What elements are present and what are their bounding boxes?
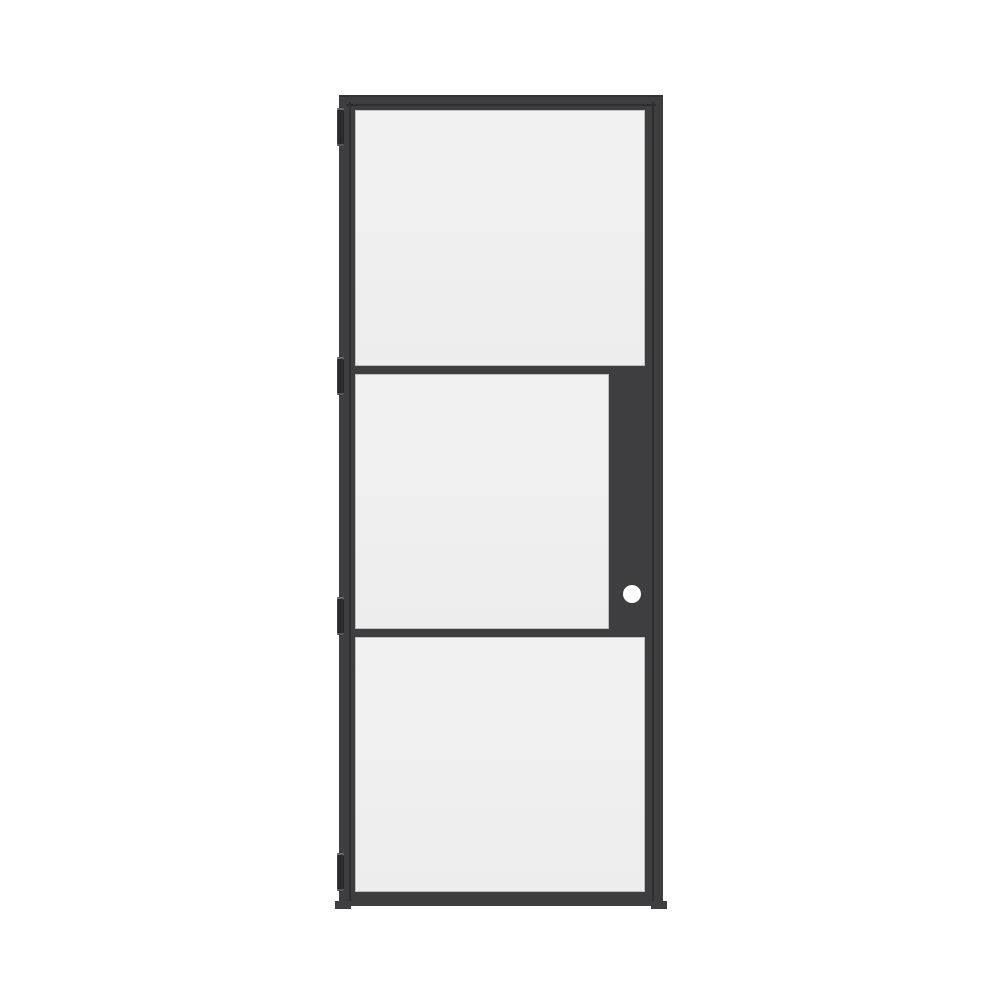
glass-panel-bottom [355, 637, 645, 892]
steel-glass-door [339, 95, 663, 906]
door-hinge-lower-middle [337, 597, 344, 635]
frame-head-edge [339, 95, 663, 97]
product-image-canvas [0, 0, 1000, 1000]
jamb-foot-left [335, 901, 351, 909]
door-knob-hole [623, 585, 641, 603]
door-hinge-upper-middle [337, 357, 344, 395]
frame-top-gap-line [346, 104, 656, 106]
jamb-foot-right [651, 901, 667, 909]
frame-right-gap-line [652, 102, 654, 902]
door-hinge-top [337, 108, 344, 146]
frame-left-gap-line [349, 102, 351, 902]
glass-panel-middle [355, 374, 609, 629]
door-hinge-bottom [337, 853, 344, 891]
glass-panel-top [355, 110, 645, 366]
